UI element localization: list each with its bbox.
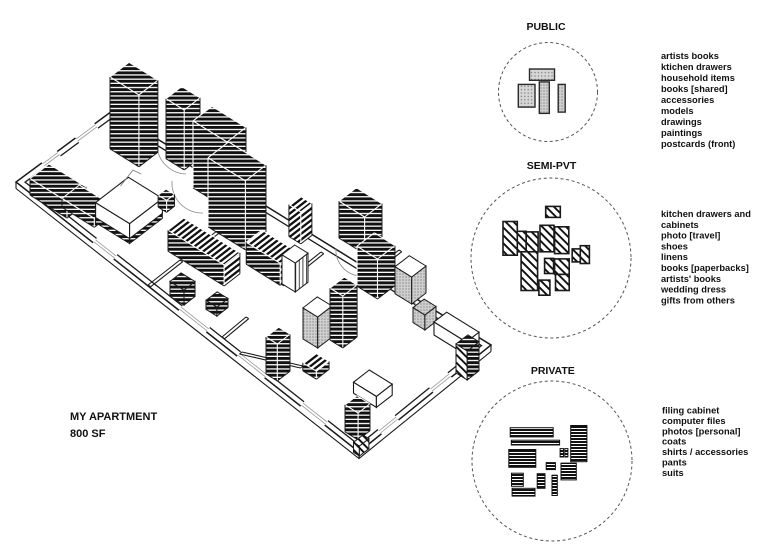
svg-text:linens: linens (661, 252, 688, 262)
svg-text:800 SF: 800 SF (70, 428, 106, 440)
svg-text:computer files: computer files (662, 416, 726, 426)
svg-text:books [paperbacks]: books [paperbacks] (661, 263, 749, 273)
svg-text:filing cabinet: filing cabinet (662, 406, 719, 416)
svg-text:artists' books: artists' books (661, 274, 721, 284)
svg-text:shirts / accessories: shirts / accessories (662, 447, 748, 457)
svg-text:household items: household items (661, 73, 735, 83)
svg-text:coats: coats (662, 437, 686, 447)
svg-text:photos [personal]: photos [personal] (662, 426, 741, 436)
svg-text:MY APARTMENT: MY APARTMENT (70, 411, 157, 423)
svg-text:SEMI-PVT: SEMI-PVT (527, 160, 577, 172)
svg-text:suits: suits (662, 468, 684, 478)
svg-text:models: models (661, 106, 694, 116)
svg-text:cabinets: cabinets (661, 220, 699, 230)
svg-text:wedding dress: wedding dress (660, 285, 726, 295)
svg-text:paintings: paintings (661, 128, 702, 138)
svg-text:kitchen drawers and: kitchen drawers and (661, 209, 751, 219)
svg-text:books [shared]: books [shared] (661, 84, 728, 94)
svg-text:shoes: shoes (661, 241, 688, 251)
svg-text:drawings: drawings (661, 117, 702, 127)
svg-text:gifts from others: gifts from others (661, 295, 735, 305)
svg-text:PUBLIC: PUBLIC (526, 21, 566, 33)
svg-text:ktichen drawers: ktichen drawers (661, 62, 732, 72)
svg-text:accessories: accessories (661, 95, 714, 105)
svg-text:photo [travel]: photo [travel] (661, 231, 720, 241)
svg-text:postcards (front): postcards (front) (661, 139, 735, 149)
svg-text:pants: pants (662, 458, 687, 468)
svg-text:PRIVATE: PRIVATE (531, 365, 575, 377)
svg-text:artists books: artists books (661, 51, 719, 61)
